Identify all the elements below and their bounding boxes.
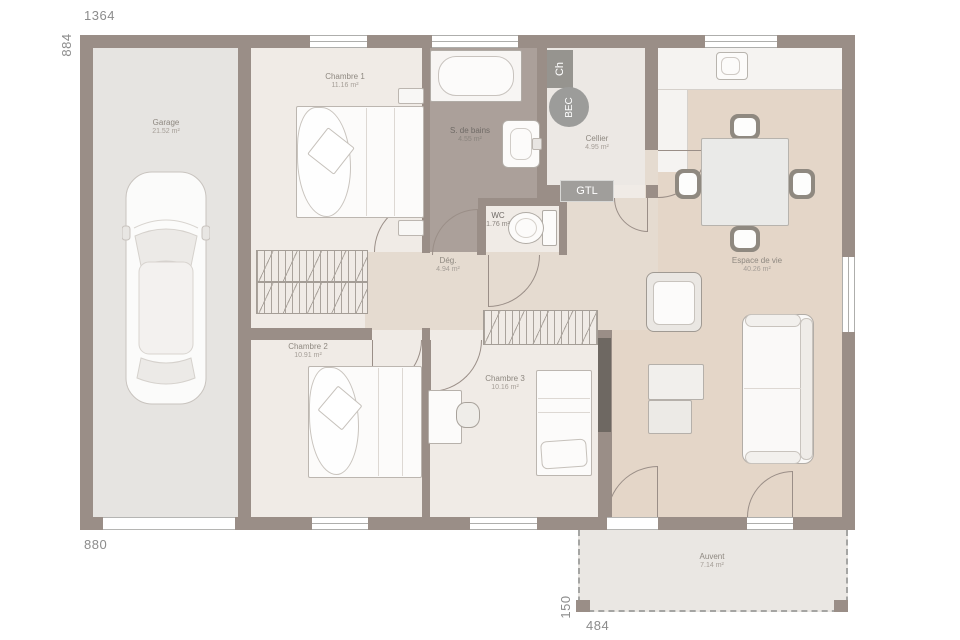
toilet-tank [542,210,557,246]
bed-fold-line [366,108,367,216]
bed-fold-line [538,398,590,399]
armchair-seat [653,281,695,325]
tv-unit [598,338,611,432]
sofa-armrest [745,451,801,464]
wall-wc-right [559,206,567,255]
room-area: 4.94 m² [403,266,493,275]
dining-chair [789,169,815,199]
auvent-post [576,600,590,612]
sofa-cushion-line [744,388,801,389]
room-area: 1.76 m² [474,221,522,230]
room-area: 4.95 m² [552,144,642,153]
kitchen-counter [658,48,842,90]
sofa-back [800,318,813,460]
room-name: Auvent [662,552,762,562]
window [432,35,518,48]
garage-door [103,517,235,530]
wall-exterior-left [80,35,93,530]
dimension-auvent-width: 484 [586,618,609,633]
bathtub-basin [438,56,514,96]
room-name: Chambre 2 [258,342,358,352]
washbasin-faucet [532,138,542,150]
room-area: 40.26 m² [707,266,807,275]
room-name: Chambre 1 [295,72,395,82]
wall-cellier-bottom [646,185,658,198]
room-label-degagement: Dég. 4.94 m² [403,256,493,275]
room-label-chambre1: Chambre 1 11.16 m² [295,72,395,91]
room-name: Chambre 3 [455,374,555,384]
kitchen-sink-bowl [721,57,740,75]
side-table [648,400,692,434]
dimension-bottom-width: 880 [84,537,107,552]
room-label-wc: WC 1.76 m² [474,211,522,230]
room-name: Espace de vie [707,256,807,266]
bed-fold-line [402,368,403,476]
room-label-chambre2: Chambre 2 10.91 m² [258,342,358,361]
room-name: Cellier [552,134,642,144]
gtl-badge: GTL [560,180,614,202]
window [705,35,777,48]
dining-chair [675,169,701,199]
side-table [648,364,704,400]
car-icon [122,170,210,408]
closet-hatch [256,250,368,282]
room-area: 10.16 m² [455,384,555,393]
room-label-cellier: Cellier 4.95 m² [552,134,642,153]
window [310,35,367,48]
window [842,257,855,332]
window [470,517,537,530]
room-name: Garage [116,118,216,128]
bed-fold-line [378,368,379,476]
room-label-garage: Garage 21.52 m² [116,118,216,137]
bed-pillow [540,438,588,469]
room-label-bathroom: S. de bains 4.55 m² [425,126,515,145]
room-area: 7.14 m² [662,562,762,571]
bec-badge: BEC [549,87,589,127]
wall-garage [238,48,251,517]
room-area: 4.55 m² [425,136,515,145]
floor-living [658,170,688,517]
room-area: 10.91 m² [258,352,358,361]
auvent-area [578,530,848,612]
wall-chambre2-top [251,328,372,340]
room-name: S. de bains [425,126,515,136]
room-label-auvent: Auvent 7.14 m² [662,552,762,571]
window [747,517,793,530]
dining-chair [730,226,760,252]
dining-chair [730,114,760,140]
dimension-left-height: 884 [59,23,73,67]
closet-hatch [483,310,598,345]
room-label-living: Espace de vie 40.26 m² [707,256,807,275]
wall-cellier-kitchen [645,35,658,150]
room-name: Dég. [403,256,493,266]
nightstand [398,88,424,104]
boiler-badge: Ch [547,50,573,88]
entry-door-opening [607,517,658,530]
dining-table [701,138,789,226]
desk-chair [456,402,480,428]
floor-plan: 1364 884 880 150 484 [0,0,960,640]
room-label-chambre3: Chambre 3 10.16 m² [455,374,555,393]
room-area: 21.52 m² [116,128,216,137]
room-name: WC [474,211,522,221]
dimension-top-width: 1364 [84,8,115,23]
dimension-auvent-height: 150 [558,585,572,629]
window [312,517,368,530]
wall-wc-top [478,198,567,206]
nightstand [398,220,424,236]
boiler-badge-label: Ch [554,62,566,76]
closet-hatch [256,282,368,314]
gtl-badge-label: GTL [576,185,597,197]
auvent-post [834,600,848,612]
bec-badge-label: BEC [564,97,575,118]
bed-fold-line [394,108,395,216]
sofa-armrest [745,314,801,327]
bed-fold-line [538,412,590,413]
room-area: 11.16 m² [295,82,395,91]
